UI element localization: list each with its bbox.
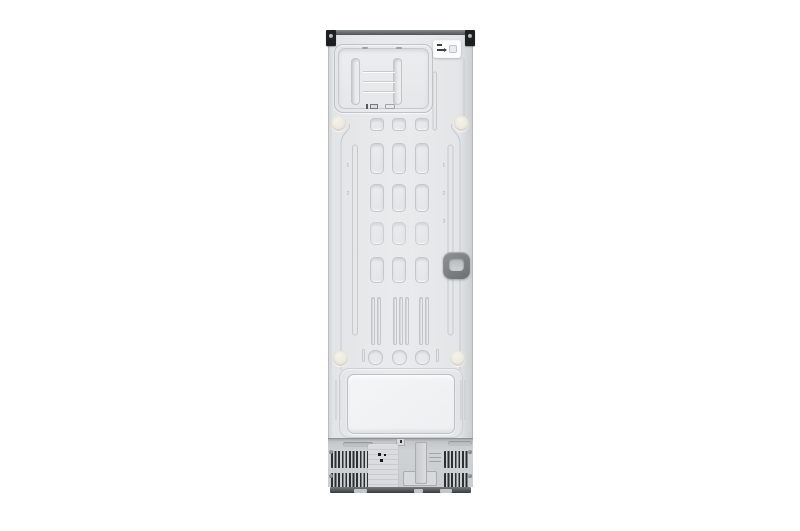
etched-digit: 1 — [347, 164, 350, 168]
stamped-slot — [368, 350, 383, 365]
screw-icon — [468, 34, 472, 38]
stamped-cell — [392, 257, 406, 283]
stamped-dash — [436, 349, 439, 362]
etched-digit: 2 — [443, 192, 446, 196]
vent-grille — [444, 473, 469, 488]
warning-dots-icon — [378, 453, 381, 456]
stamped-cell — [392, 184, 406, 212]
rating-label-plate — [368, 444, 398, 488]
panel-bottom-latch — [370, 104, 378, 109]
plug-icon — [449, 45, 457, 53]
screw-boss — [333, 351, 348, 366]
cord-clip-mark — [400, 440, 402, 443]
panel-clip — [362, 47, 368, 49]
panel-clip — [396, 47, 402, 49]
stamped-cell — [370, 222, 384, 245]
sticker-dash-icon — [437, 49, 444, 51]
vent-grille — [331, 451, 369, 468]
vent-grille — [444, 451, 469, 468]
plug-instruction-sticker — [433, 40, 461, 58]
stamped-cell — [415, 257, 429, 283]
etched-digit: 1 — [443, 164, 446, 168]
stamped-slat — [425, 297, 429, 345]
warning-dots-icon — [384, 454, 386, 456]
vent-grille — [331, 473, 369, 488]
stamped-slot — [415, 350, 430, 365]
screw-boss — [450, 351, 465, 366]
stamped-cell — [392, 118, 406, 131]
stamped-cell — [370, 257, 384, 283]
etched-text-line — [429, 453, 441, 454]
screw-icon — [329, 34, 333, 38]
top-cap-strip — [329, 30, 472, 35]
refrigerator-back-panel: 1 2 1 2 3 — [326, 30, 475, 494]
stamped-dash — [362, 349, 365, 362]
stamped-slat — [405, 297, 409, 345]
stamped-cell — [415, 143, 429, 174]
stamped-slat — [377, 297, 381, 345]
screw-boss — [454, 116, 469, 131]
recessed-handle-cavity — [449, 258, 464, 271]
etched-digit: 3 — [443, 220, 446, 224]
etched-text-line — [429, 461, 441, 462]
drain-tray-panel — [347, 374, 455, 434]
photo-canvas: 1 2 1 2 3 — [0, 0, 800, 531]
corner-bracket-left — [326, 30, 336, 46]
foot-tab — [440, 489, 452, 493]
screw-boss — [331, 116, 346, 131]
screw-icon — [468, 474, 472, 478]
panel-ridge — [363, 81, 395, 82]
panel-bottom-slot — [385, 104, 395, 109]
stamped-cell — [370, 184, 384, 212]
evaporator-access-panel — [334, 44, 433, 113]
stamped-cell — [415, 184, 429, 212]
screw-icon — [329, 450, 333, 454]
stamped-cell — [370, 118, 384, 131]
panel-ridge — [363, 91, 395, 92]
panel-bottom-mark — [366, 104, 368, 109]
stamped-cell — [392, 143, 406, 174]
etched-text-line — [429, 457, 441, 458]
recessed-handle — [443, 252, 470, 279]
stamped-cell — [415, 118, 429, 131]
panel-ridge — [363, 71, 395, 72]
foot-tab — [354, 489, 367, 493]
compressor-compartment — [328, 438, 473, 487]
panel-slot-left — [351, 58, 360, 105]
stamped-slat — [419, 297, 423, 345]
warning-dots-icon — [380, 459, 383, 462]
foot-tab — [414, 489, 423, 493]
stamped-cell — [370, 143, 384, 174]
arrow-right-icon — [444, 48, 447, 52]
etched-digit: 2 — [347, 192, 350, 196]
stamped-slat — [399, 297, 403, 345]
stamped-cell — [392, 222, 406, 245]
sticker-dash-icon — [437, 44, 442, 46]
mounting-bracket — [415, 442, 427, 484]
stamped-slat — [371, 297, 375, 345]
corner-bracket-right — [465, 30, 475, 46]
stamped-slat — [393, 297, 397, 345]
screw-icon — [468, 450, 472, 454]
screw-icon — [329, 474, 333, 478]
stamped-slot — [392, 350, 407, 365]
vent-slot-right — [448, 441, 472, 446]
stamped-cell — [415, 222, 429, 245]
